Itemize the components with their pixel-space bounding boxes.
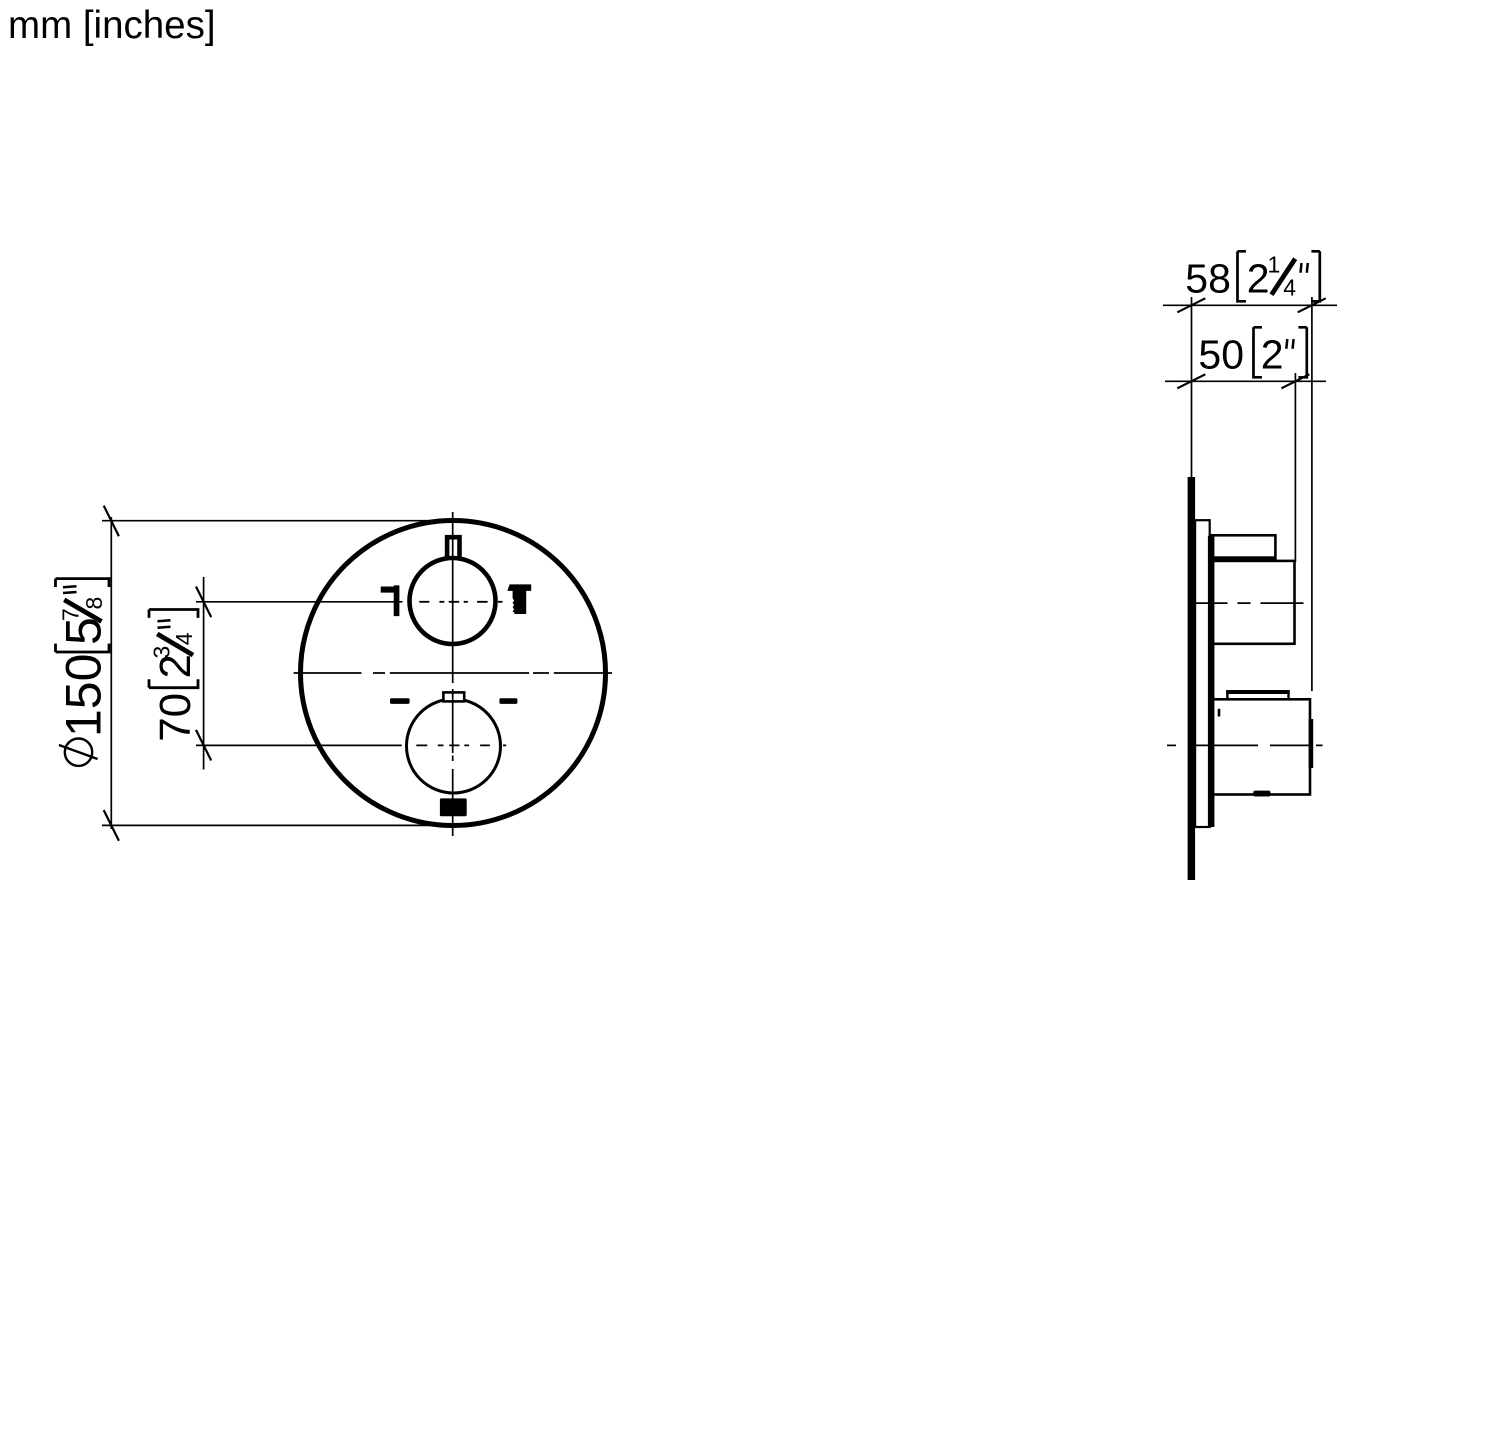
svg-text:1: 1 <box>1268 252 1281 278</box>
svg-text:2: 2 <box>1261 332 1284 378</box>
svg-text:4: 4 <box>1283 274 1296 300</box>
svg-text:70: 70 <box>151 693 200 742</box>
svg-text:50: 50 <box>1198 332 1244 378</box>
svg-text:2: 2 <box>1247 256 1270 302</box>
svg-text:150: 150 <box>56 654 112 737</box>
svg-text:58: 58 <box>1185 256 1231 302</box>
svg-text:8: 8 <box>81 597 107 610</box>
svg-text:4: 4 <box>171 632 197 645</box>
svg-text:mm [inches]: mm [inches] <box>8 4 216 47</box>
svg-text:3: 3 <box>149 646 175 659</box>
